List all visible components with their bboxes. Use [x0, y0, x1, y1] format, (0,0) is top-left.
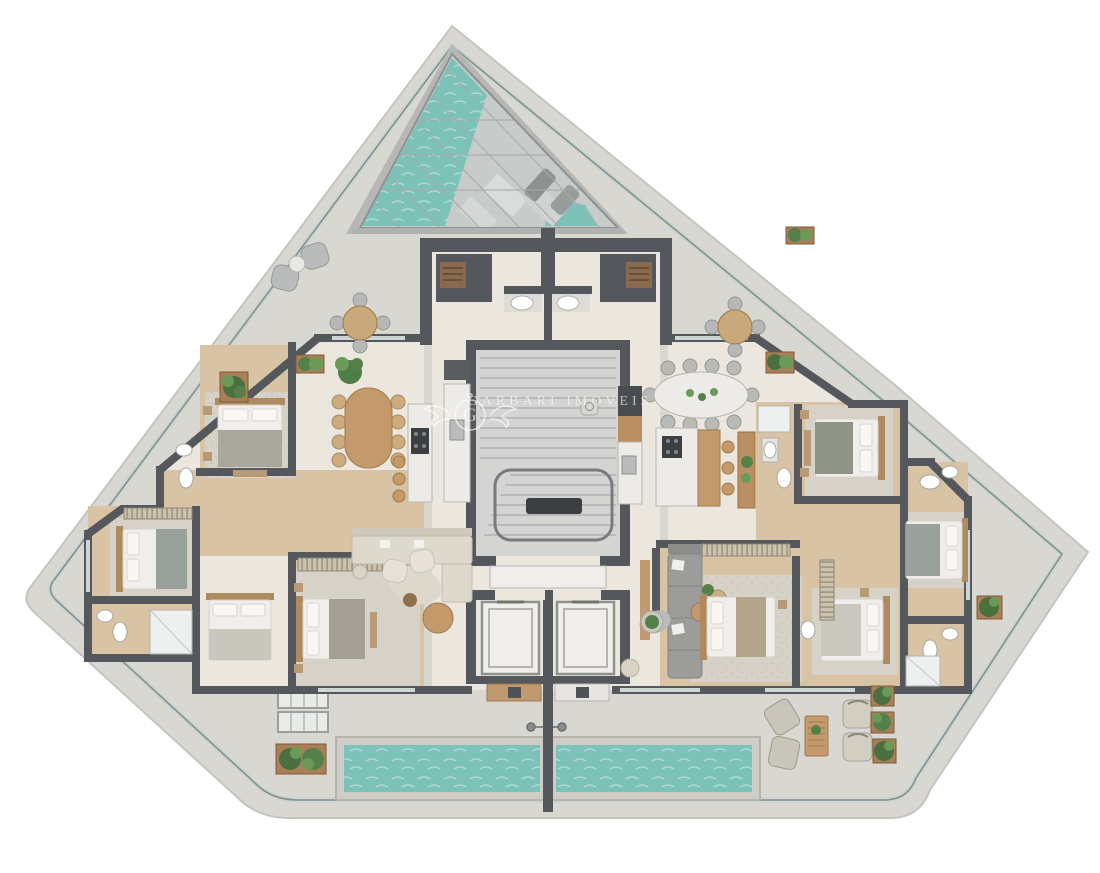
side-table	[289, 256, 305, 272]
wardrobe-right-2	[820, 560, 834, 620]
skylight-base-curb	[352, 228, 622, 234]
bed-right-1	[700, 594, 775, 660]
stair-handrail-core	[526, 498, 582, 514]
lobby-plant	[641, 611, 663, 633]
planter	[786, 227, 814, 244]
planter	[977, 596, 1002, 619]
bed-left-suite2	[206, 593, 274, 660]
floorplan-render: G GARBARI IMÓVEIS	[0, 0, 1100, 873]
planter	[220, 372, 248, 402]
bed-suite-right	[804, 416, 885, 480]
armchair-left-2	[408, 548, 435, 574]
planter	[873, 739, 896, 763]
staircase	[476, 350, 620, 556]
pool-divider-wall	[543, 684, 553, 812]
pouf-hall	[621, 659, 639, 677]
bed-suite-topleft	[215, 398, 285, 477]
planter	[871, 686, 894, 706]
planter-double	[276, 744, 326, 774]
planter	[296, 355, 324, 373]
elevator-lobby	[490, 566, 606, 588]
wardrobe-block	[124, 508, 192, 519]
bed-left-master	[296, 596, 377, 662]
wall-oven-icon	[581, 398, 598, 415]
bed-right-block	[906, 518, 968, 582]
outdoor-lounger	[767, 735, 801, 770]
dining-table-left	[332, 388, 405, 468]
planter	[766, 352, 794, 373]
floorplan-svg	[0, 0, 1100, 873]
bed-left-block	[116, 526, 187, 592]
bed-bench	[233, 470, 267, 477]
planter	[871, 712, 894, 733]
coffee-table-left	[423, 603, 453, 633]
wardrobe-right-1	[702, 544, 790, 556]
